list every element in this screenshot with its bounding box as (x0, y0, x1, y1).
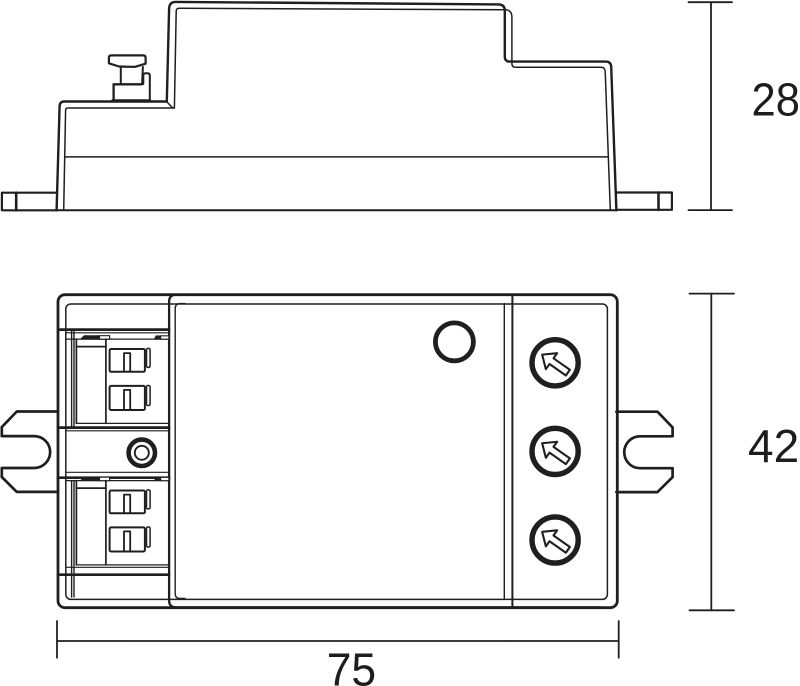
svg-text:75: 75 (327, 643, 376, 686)
svg-text:42: 42 (748, 420, 799, 472)
svg-text:28: 28 (752, 74, 800, 126)
